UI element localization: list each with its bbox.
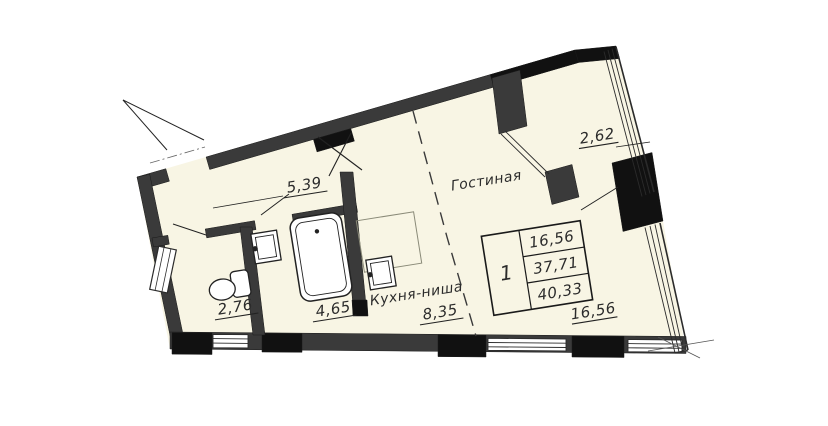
bottom-window-1 — [213, 334, 248, 348]
bath-wall-end-cap — [352, 300, 368, 316]
kitchen-sink — [365, 256, 396, 290]
bathroom-sink — [250, 230, 281, 264]
bottom-column-3 — [438, 335, 486, 357]
bottom-column-1 — [172, 333, 212, 355]
entrance-door-swing — [123, 100, 205, 163]
floor-plan-page: 1 16,56 37,71 40,33 5,39 2,76 4,65 Кухня… — [0, 0, 828, 426]
bottom-window-2 — [488, 338, 566, 351]
bottom-column-4 — [572, 336, 624, 358]
bottom-column-2 — [262, 333, 302, 352]
floor-plan-canvas: 1 16,56 37,71 40,33 5,39 2,76 4,65 Кухня… — [0, 0, 828, 426]
